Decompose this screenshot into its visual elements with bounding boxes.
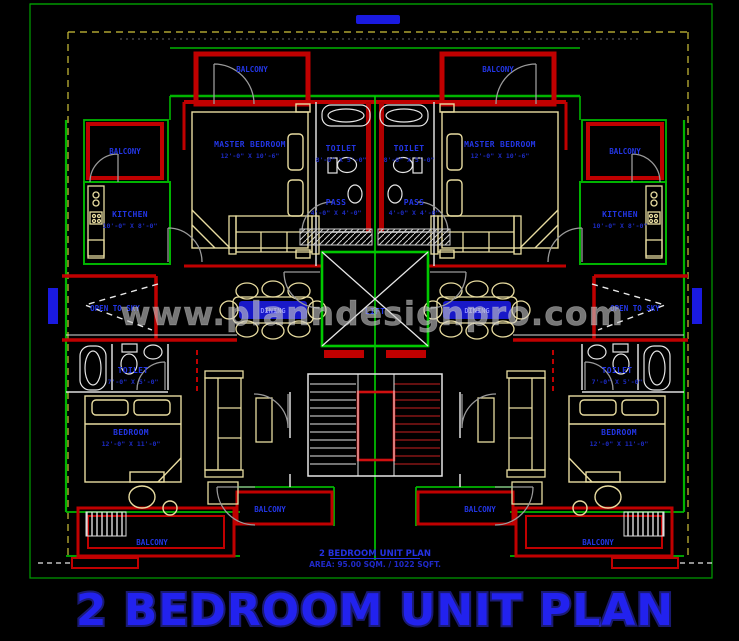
label-bedroom-right: BEDROOM <box>601 428 637 437</box>
label-balcony-top-left: BALCONY <box>236 65 268 74</box>
drawing-subtitle: 2 BEDROOM UNIT PLAN <box>319 549 431 559</box>
dims-toilet-top-left: 8'-0" X 5'-0" <box>316 156 367 164</box>
label-bedroom-left: BEDROOM <box>113 428 149 437</box>
label-kitchen-left: KITCHEN <box>112 210 148 219</box>
top-dimension-highlight <box>356 15 400 24</box>
duct-shaft-hatched <box>300 229 372 245</box>
label-balcony-outer-left: BALCONY <box>136 538 168 547</box>
label-master-bedroom-left: MASTER BEDROOM <box>214 140 286 149</box>
floor-plan-drawing: BALCONY BALCONY MASTER BEDROOM 12'-0" X … <box>0 0 739 641</box>
label-toilet-bottom-left: TOILET <box>118 366 149 375</box>
label-toilet-bottom-right: TOILET <box>602 366 633 375</box>
dims-master-bedroom-left: 12'-0" X 10'-6" <box>221 152 280 160</box>
drawing-area-note: AREA: 95.00 SQM. / 1022 SQFT. <box>309 560 441 569</box>
lift-lobby-red-wall <box>386 350 426 358</box>
dims-toilet-bottom-right: 7'-0" X 5'-0" <box>592 378 643 386</box>
watermark-text: www.planndesignpro.com <box>120 294 624 333</box>
label-pass-left: PASS <box>326 198 346 207</box>
dims-bedroom-left: 12'-0" X 11'-0" <box>102 440 161 448</box>
label-balcony-upper-left: BALCONY <box>109 147 141 156</box>
label-pass-right: PASS <box>404 198 424 207</box>
dims-kitchen-right: 10'-0" X 8'-0" <box>593 222 648 230</box>
label-balcony-upper-right: BALCONY <box>609 147 641 156</box>
label-balcony-inner-left: BALCONY <box>254 505 286 514</box>
dims-pass-left: 4'-0" X 4'-0" <box>311 209 362 217</box>
label-balcony-inner-right: BALCONY <box>464 505 496 514</box>
dims-toilet-bottom-left: 7'-0" X 5'-0" <box>108 378 159 386</box>
balcony-hatch-strip <box>86 512 126 536</box>
label-master-bedroom-right: MASTER BEDROOM <box>464 140 536 149</box>
label-balcony-top-right: BALCONY <box>482 65 514 74</box>
main-title: 2 BEDROOM UNIT PLAN <box>76 585 674 636</box>
label-kitchen-right: KITCHEN <box>602 210 638 219</box>
label-toilet-top-right: TOILET <box>394 144 425 153</box>
dims-bedroom-right: 12'-0" X 11'-0" <box>590 440 649 448</box>
dims-toilet-top-right: 8'-0" X 5'-0" <box>384 156 435 164</box>
label-balcony-outer-right: BALCONY <box>582 538 614 547</box>
dims-master-bedroom-right: 12'-0" X 10'-6" <box>471 152 530 160</box>
right-dimension-highlight <box>692 288 702 324</box>
left-dimension-highlight <box>48 288 58 324</box>
duct-shaft-hatched <box>378 229 450 245</box>
lift-lobby-red-wall <box>324 350 364 358</box>
dims-pass-right: 4'-0" X 4'-0" <box>389 209 440 217</box>
dims-kitchen-left: 10'-0" X 8'-0" <box>103 222 158 230</box>
label-toilet-top-left: TOILET <box>326 144 357 153</box>
